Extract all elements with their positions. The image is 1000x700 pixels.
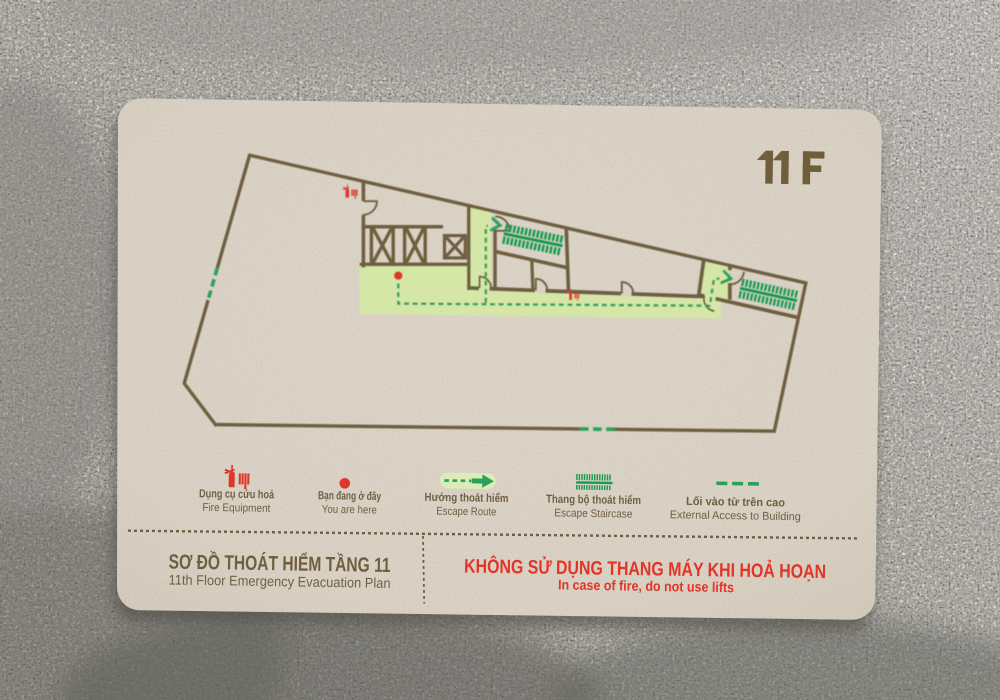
svg-text:Escape Route: Escape Route xyxy=(436,506,496,519)
svg-text:Lối vào từ trên cao: Lối vào từ trên cao xyxy=(686,495,785,510)
svg-text:Fire Equipment: Fire Equipment xyxy=(202,502,271,515)
svg-text:Escape Staircase: Escape Staircase xyxy=(554,507,632,520)
svg-text:External Access to Building: External Access to Building xyxy=(670,509,801,523)
svg-text:Thang bộ thoát hiểm: Thang bộ thoát hiểm xyxy=(546,493,641,507)
svg-text:Bạn đang ở đây: Bạn đang ở đây xyxy=(318,489,382,503)
svg-text:Dụng cụ cứu hoả: Dụng cụ cứu hoả xyxy=(199,487,275,501)
svg-text:You are here: You are here xyxy=(322,504,377,517)
svg-text:In case of fire, do not use li: In case of fire, do not use lifts xyxy=(558,576,734,595)
svg-text:Hướng thoát hiểm: Hướng thoát hiểm xyxy=(424,491,508,505)
